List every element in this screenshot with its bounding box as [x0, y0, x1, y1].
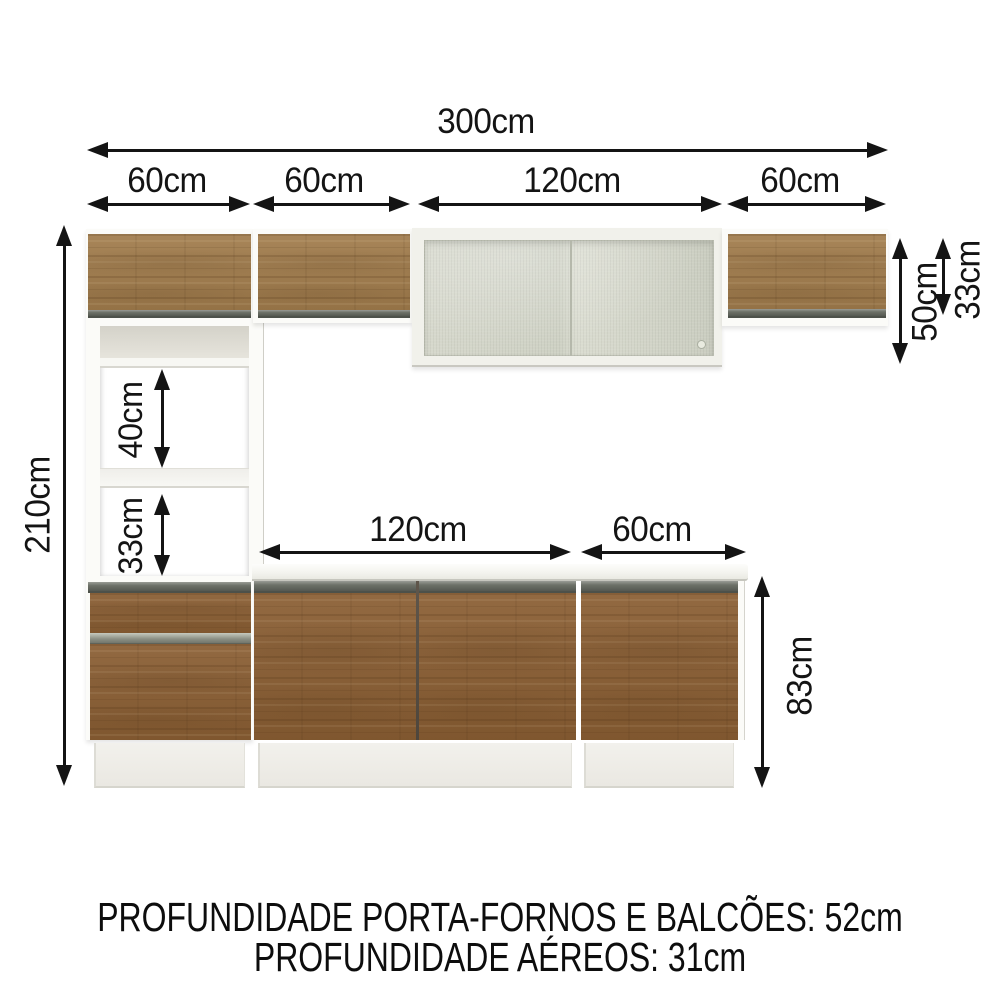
dim-label-lower-niche: 33cm	[114, 497, 148, 574]
tall-cabinet-drawer-handle	[90, 633, 251, 644]
dim-arrow-counter-left	[259, 539, 571, 565]
tall-cabinet-counter-rail	[88, 582, 251, 593]
base-door-3-handle-rail	[581, 581, 738, 593]
depth-note-line1: PROFUNDIDADE PORTA-FORNOS E BALCÕES: 52c…	[97, 897, 903, 938]
dim-arrow-segment-1	[87, 191, 250, 217]
dim-arrow-total-height	[51, 225, 77, 786]
dim-label-total-width: 300cm	[437, 104, 534, 139]
tall-cabinet-drawer-front	[90, 593, 251, 633]
dim-arrow-segment-3	[418, 191, 722, 217]
niche-shelf-middle	[100, 468, 249, 488]
base-cabinet-120-door-right	[419, 593, 576, 740]
base-cabinet-120-plinth	[258, 743, 572, 788]
dim-label-base-height: 83cm	[783, 636, 818, 715]
base-cabinet-60-plinth	[584, 743, 734, 788]
dim-arrow-segment-2	[253, 191, 410, 217]
tall-cabinet-top-door-handle-rail	[88, 310, 251, 318]
depth-note-line2: PROFUNDIDADE AÉREOS: 31cm	[254, 937, 746, 978]
dim-label-wall-cabinet-height: 33cm	[951, 240, 986, 319]
base-cabinet-60-side-panel	[738, 581, 745, 740]
dim-arrow-oven-niche	[149, 369, 175, 468]
countertop	[252, 564, 748, 581]
tall-oven-cabinet	[86, 229, 253, 740]
glass-door-knob	[697, 340, 706, 349]
glass-sliding-doors	[424, 240, 714, 356]
kitchen-set-dimension-diagram: 300cm 60cm 60cm 120cm 60cm 210cm 50cm 33…	[0, 0, 1000, 1000]
dim-arrow-counter-right	[581, 539, 746, 565]
wall-cabinet-right-door	[728, 234, 886, 309]
base-cabinet-120-door-left	[254, 593, 416, 740]
base-door-2-handle-rail	[419, 581, 576, 593]
glass-door-seam	[570, 240, 572, 356]
wall-cabinet-left	[253, 229, 412, 323]
niche-shelf-top	[100, 358, 249, 368]
dim-arrow-total-width	[87, 137, 888, 163]
niche-recess	[100, 326, 249, 358]
dim-arrow-lower-niche	[149, 494, 175, 576]
glass-wall-cabinet	[412, 228, 722, 367]
tall-cabinet-plinth	[94, 743, 245, 788]
dim-arrow-segment-4	[727, 191, 886, 217]
base-door-1-handle-rail	[254, 581, 416, 593]
wall-cabinet-right-handle-rail	[728, 309, 886, 318]
wall-cabinet-left-door	[258, 234, 410, 310]
wall-cabinet-left-handle-rail	[258, 310, 410, 318]
tall-cabinet-side-panel	[250, 318, 264, 564]
wall-cabinet-right	[722, 229, 888, 326]
base-cabinet-60-door	[581, 593, 738, 740]
tall-cabinet-top-door	[88, 234, 251, 310]
dim-label-oven-niche: 40cm	[114, 381, 148, 458]
tall-cabinet-bottom-door	[90, 644, 251, 740]
dim-arrow-base-height	[749, 576, 775, 788]
